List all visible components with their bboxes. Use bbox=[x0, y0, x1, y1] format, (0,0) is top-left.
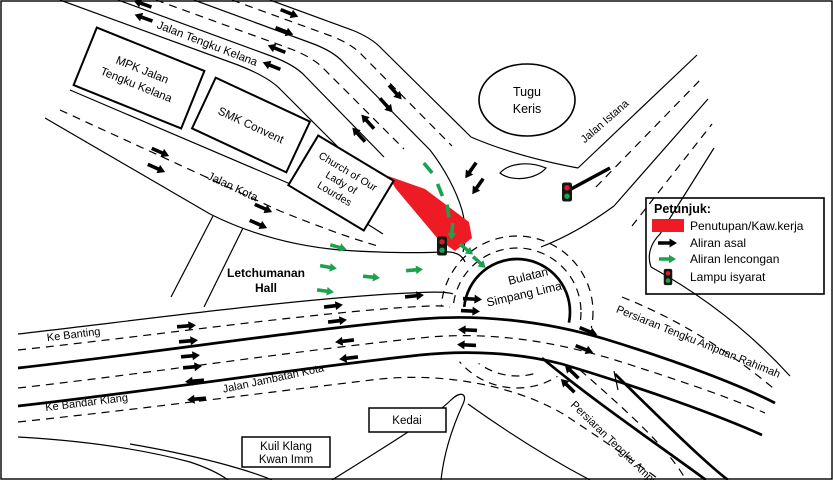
legend-lampu-label: Lampu isyarat bbox=[690, 270, 766, 284]
green-arrow-icon bbox=[659, 255, 676, 264]
tugu-label-line1: Tugu bbox=[513, 85, 541, 99]
kedai-label: Kedai bbox=[392, 415, 421, 427]
label-persiaran-ampuan-south: Persiaran Tengku Ampu bbox=[568, 399, 660, 480]
letchumanan-label-line2: Hall bbox=[255, 281, 277, 295]
south-loop-road bbox=[332, 394, 465, 480]
label-jalan-kota: Jalan Kota bbox=[205, 170, 260, 204]
traffic-light-junction-west bbox=[437, 237, 447, 256]
traffic-light-pole bbox=[571, 168, 610, 189]
landmark-letchumanan-hall: Letchumanan Hall bbox=[227, 266, 305, 295]
letchumanan-branch-left bbox=[171, 216, 213, 297]
kuil-label-line2: Kwan Imm bbox=[259, 454, 313, 466]
traffic-diversion-diagram: MPK Jalan Tengku Kelana SMK Convent Chur… bbox=[0, 0, 833, 480]
legend-closure-label: Penutupan/Kaw.kerja bbox=[690, 219, 804, 233]
building-mpk: MPK Jalan Tengku Kelana bbox=[74, 28, 205, 129]
legend-lencongan-label: Aliran lencongan bbox=[690, 252, 779, 266]
legend-asal-label: Aliran asal bbox=[690, 236, 746, 250]
kuil-label-line1: Kuil Klang bbox=[260, 441, 312, 453]
letchumanan-label-line1: Letchumanan bbox=[227, 266, 305, 280]
traffic-light-icon bbox=[664, 269, 673, 285]
building-smk-convent: SMK Convent bbox=[192, 78, 310, 173]
legend-title: Petunjuk: bbox=[654, 202, 711, 216]
tugu-label-line2: Keris bbox=[513, 102, 541, 116]
closure-swatch bbox=[652, 219, 684, 232]
label-jalan-istana: Jalan Istana bbox=[579, 97, 632, 146]
traffic-light-jalan-istana bbox=[562, 183, 572, 202]
building-kedai: Kedai bbox=[369, 408, 446, 432]
black-arrow-icon bbox=[658, 239, 677, 248]
building-kuil-klang: Kuil Klang Kwan Imm bbox=[242, 437, 330, 467]
splitter-island bbox=[500, 164, 546, 179]
diagram-canvas: MPK Jalan Tengku Kelana SMK Convent Chur… bbox=[0, 0, 833, 480]
building-church: Church of Our Lady of Lourdes bbox=[288, 135, 393, 230]
landmark-tugu-keris: Tugu Keris bbox=[479, 64, 575, 136]
closure-work-zone bbox=[388, 176, 472, 251]
